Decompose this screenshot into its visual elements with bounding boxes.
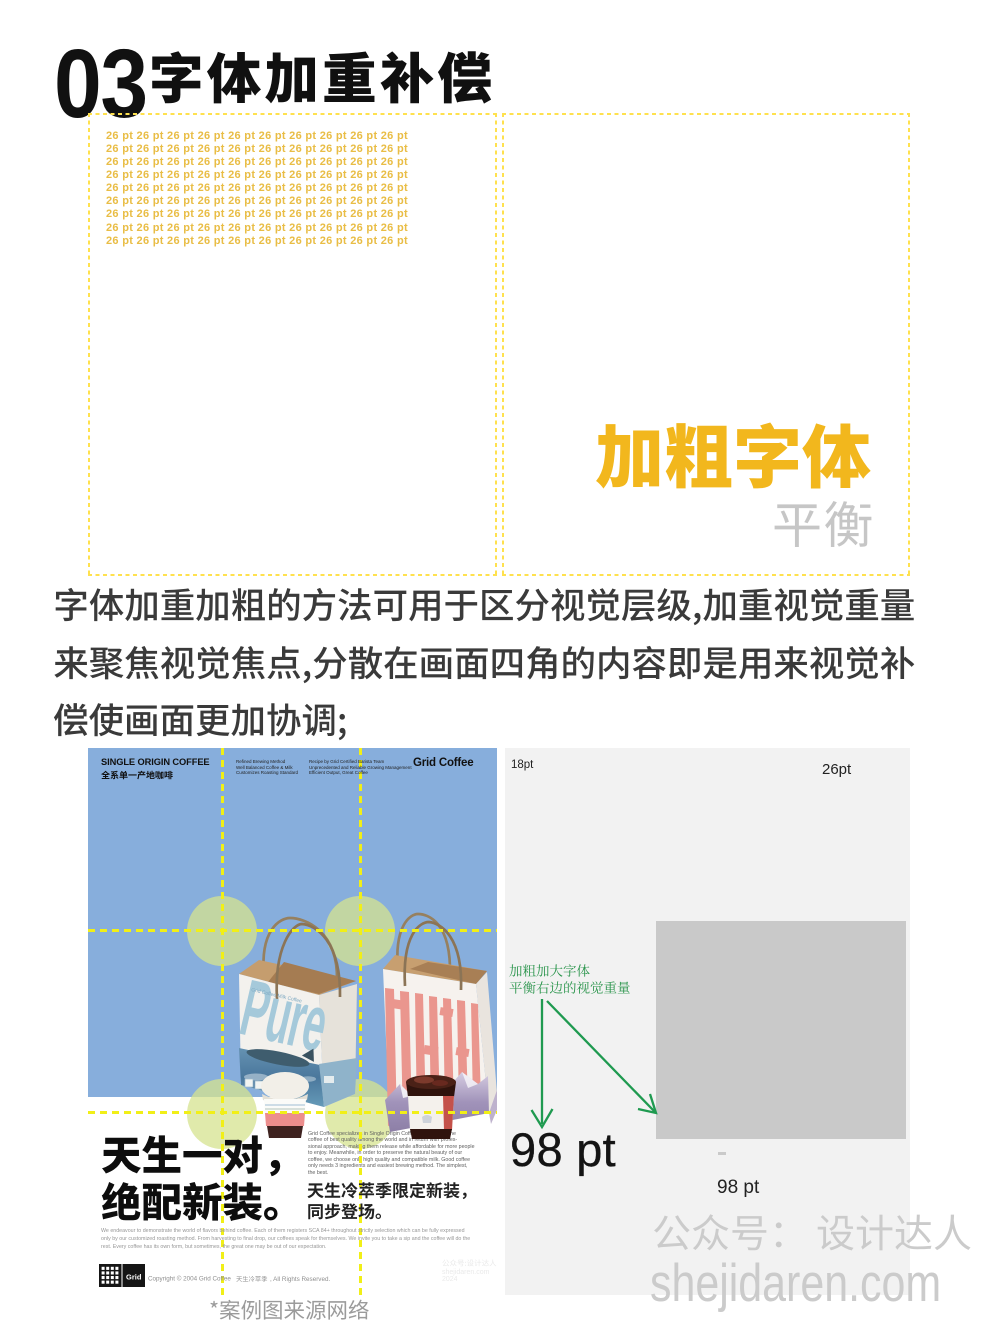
svg-text:Grid: Grid	[126, 1273, 142, 1282]
svg-text:Copyright © 2004 Grid Coffee: Copyright © 2004 Grid Coffee	[148, 1275, 231, 1283]
